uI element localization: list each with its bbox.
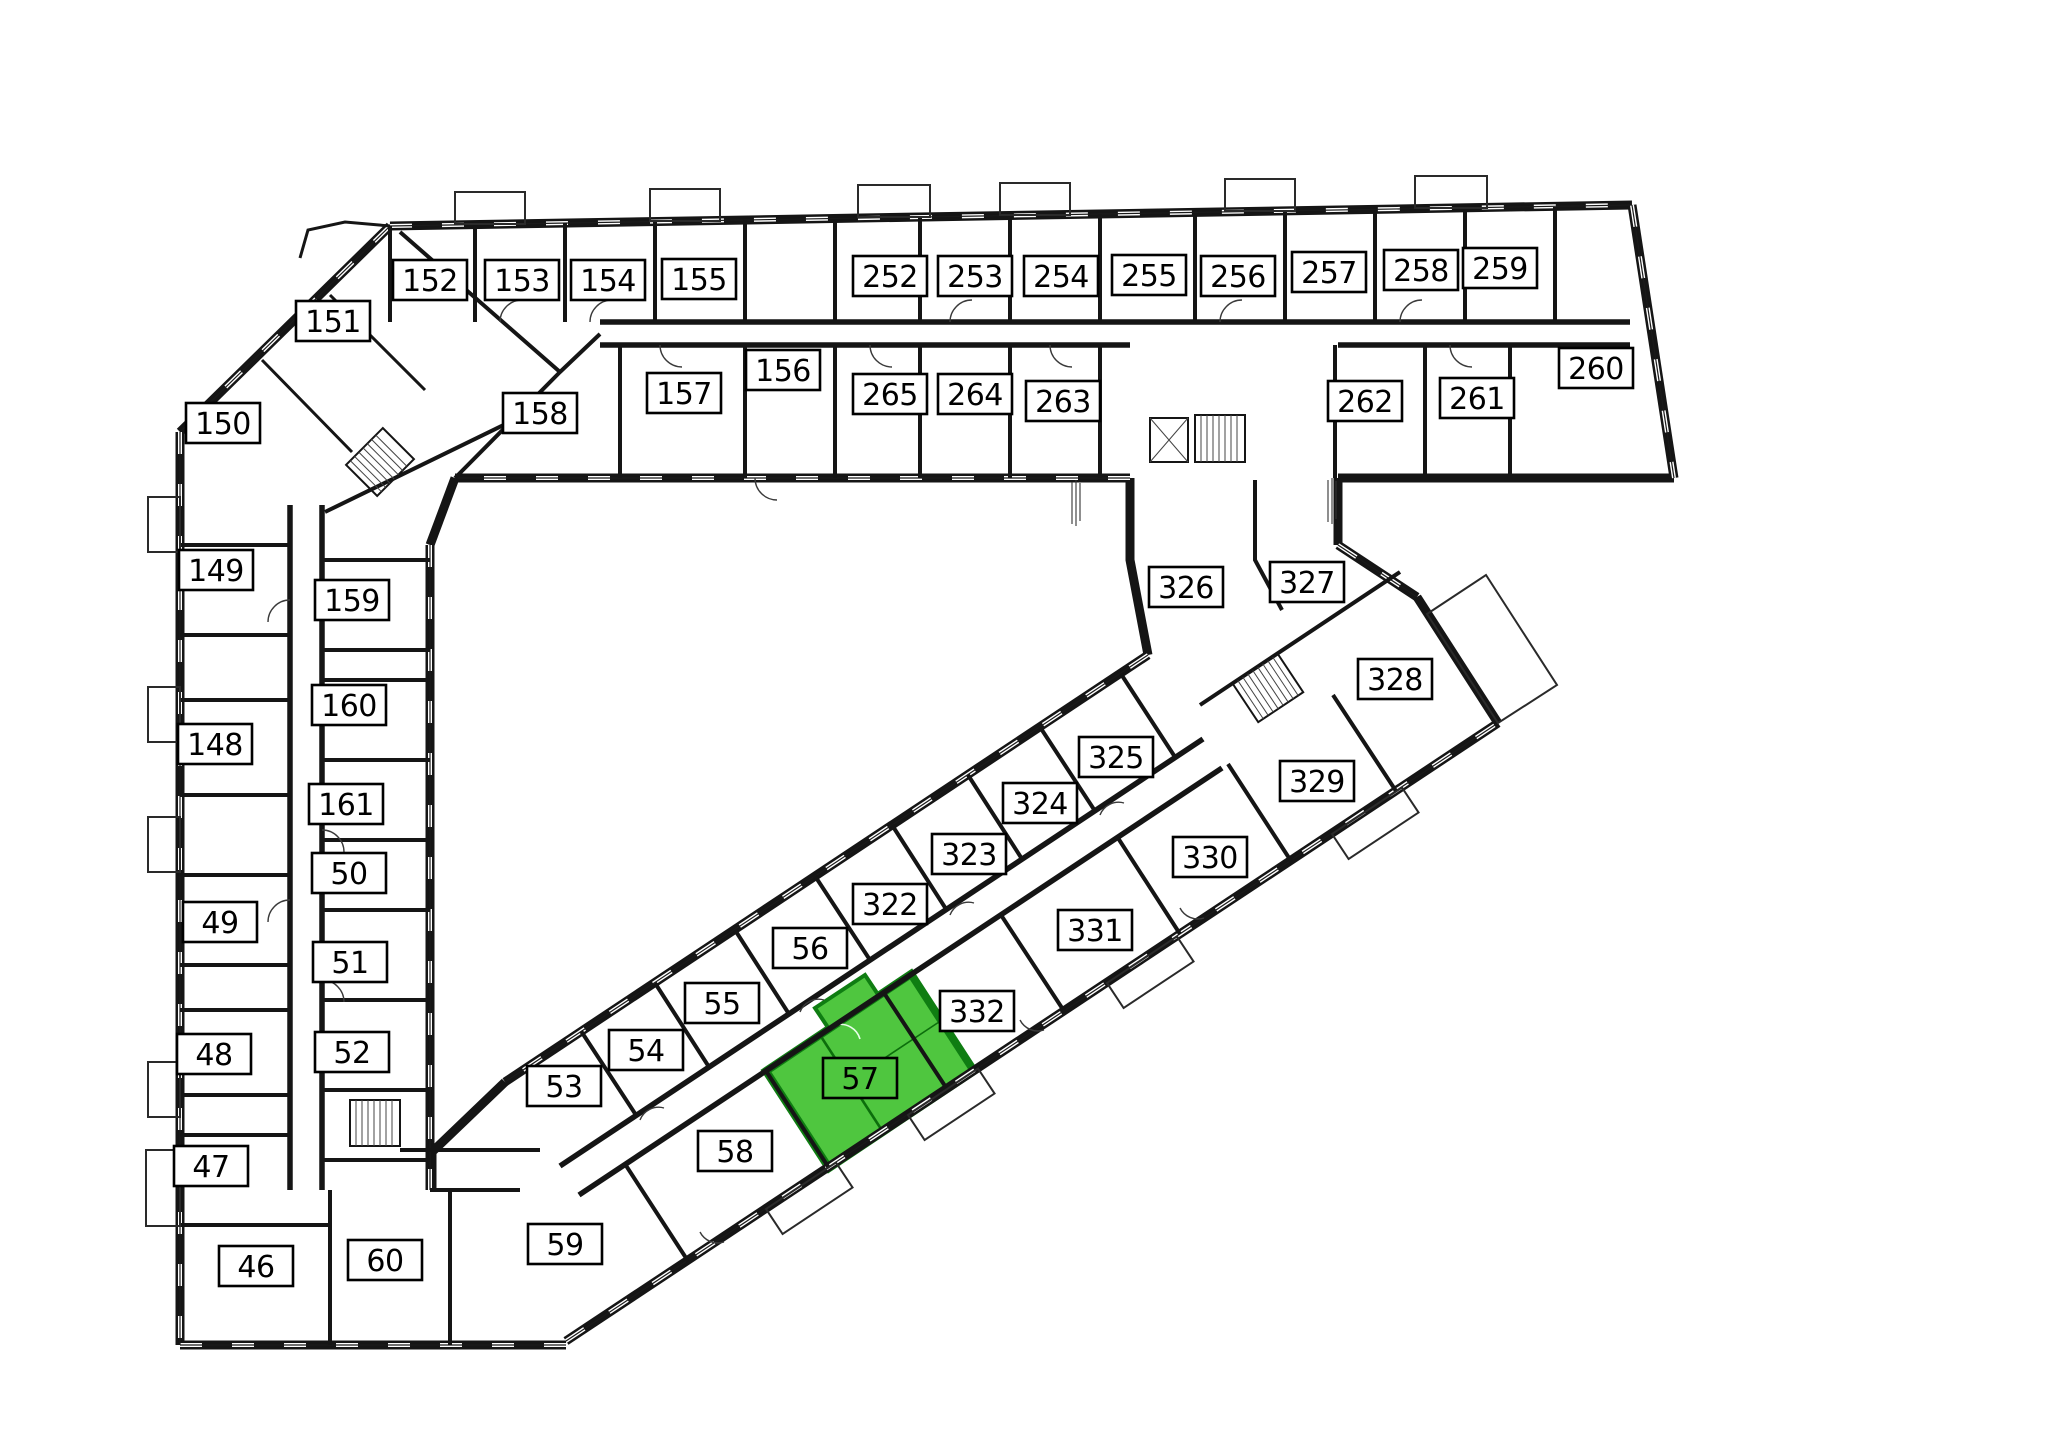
room-label-59[interactable]: 59 <box>528 1224 602 1264</box>
svg-text:252: 252 <box>862 260 918 295</box>
room-label-52[interactable]: 52 <box>315 1032 389 1072</box>
room-label-157[interactable]: 157 <box>647 373 721 413</box>
svg-text:154: 154 <box>580 264 636 299</box>
svg-text:52: 52 <box>333 1036 370 1071</box>
svg-text:48: 48 <box>195 1038 232 1073</box>
room-label-259[interactable]: 259 <box>1463 248 1537 288</box>
svg-text:156: 156 <box>755 354 811 389</box>
svg-text:323: 323 <box>941 838 997 873</box>
svg-text:55: 55 <box>703 987 740 1022</box>
room-label-332[interactable]: 332 <box>940 991 1014 1031</box>
svg-text:331: 331 <box>1067 914 1123 949</box>
room-label-154[interactable]: 154 <box>571 260 645 300</box>
room-label-255[interactable]: 255 <box>1112 255 1186 295</box>
svg-text:263: 263 <box>1035 385 1091 420</box>
room-label-329[interactable]: 329 <box>1280 761 1354 801</box>
room-label-55[interactable]: 55 <box>685 983 759 1023</box>
room-label-47[interactable]: 47 <box>174 1146 248 1186</box>
room-label-262[interactable]: 262 <box>1328 381 1402 421</box>
room-label-322[interactable]: 322 <box>853 884 927 924</box>
room-label-323[interactable]: 323 <box>932 834 1006 874</box>
svg-text:259: 259 <box>1472 252 1528 287</box>
room-label-150[interactable]: 150 <box>186 403 260 443</box>
svg-text:327: 327 <box>1279 566 1335 601</box>
svg-text:58: 58 <box>716 1135 753 1170</box>
room-label-60[interactable]: 60 <box>348 1240 422 1280</box>
svg-text:56: 56 <box>791 932 828 967</box>
svg-text:161: 161 <box>318 788 374 823</box>
svg-text:324: 324 <box>1012 787 1068 822</box>
svg-text:57: 57 <box>841 1062 878 1097</box>
room-label-253[interactable]: 253 <box>938 256 1012 296</box>
svg-text:153: 153 <box>494 264 550 299</box>
room-label-153[interactable]: 153 <box>485 260 559 300</box>
room-label-160[interactable]: 160 <box>312 685 386 725</box>
svg-text:157: 157 <box>656 377 712 412</box>
room-label-324[interactable]: 324 <box>1003 783 1077 823</box>
svg-text:148: 148 <box>187 728 243 763</box>
svg-text:332: 332 <box>949 995 1005 1030</box>
room-label-152[interactable]: 152 <box>393 260 467 300</box>
room-label-258[interactable]: 258 <box>1384 250 1458 290</box>
room-label-264[interactable]: 264 <box>938 374 1012 414</box>
svg-text:262: 262 <box>1337 385 1393 420</box>
room-label-261[interactable]: 261 <box>1440 378 1514 418</box>
svg-text:254: 254 <box>1033 260 1089 295</box>
svg-text:322: 322 <box>862 888 918 923</box>
room-label-327[interactable]: 327 <box>1270 562 1344 602</box>
svg-text:328: 328 <box>1367 663 1423 698</box>
room-label-148[interactable]: 148 <box>178 724 252 764</box>
svg-text:49: 49 <box>201 906 238 941</box>
room-label-263[interactable]: 263 <box>1026 381 1100 421</box>
svg-text:256: 256 <box>1210 260 1266 295</box>
svg-text:51: 51 <box>331 946 368 981</box>
svg-text:47: 47 <box>192 1150 229 1185</box>
room-label-326[interactable]: 326 <box>1149 567 1223 607</box>
floor-plan-page: { "plan": { "background": "#ffffff", "wa… <box>0 0 2048 1447</box>
room-label-46[interactable]: 46 <box>219 1246 293 1286</box>
svg-text:46: 46 <box>237 1250 274 1285</box>
svg-text:158: 158 <box>512 397 568 432</box>
svg-text:155: 155 <box>671 263 727 298</box>
room-label-254[interactable]: 254 <box>1024 256 1098 296</box>
room-label-50[interactable]: 50 <box>312 853 386 893</box>
room-label-56[interactable]: 56 <box>773 928 847 968</box>
room-label-330[interactable]: 330 <box>1173 837 1247 877</box>
svg-text:253: 253 <box>947 260 1003 295</box>
room-label-328[interactable]: 328 <box>1358 659 1432 699</box>
room-label-155[interactable]: 155 <box>662 259 736 299</box>
room-label-331[interactable]: 331 <box>1058 910 1132 950</box>
svg-text:50: 50 <box>330 857 367 892</box>
svg-text:59: 59 <box>546 1228 583 1263</box>
room-label-57[interactable]: 57 <box>823 1058 897 1098</box>
room-label-260[interactable]: 260 <box>1559 348 1633 388</box>
svg-text:152: 152 <box>402 264 458 299</box>
room-label-58[interactable]: 58 <box>698 1131 772 1171</box>
svg-text:257: 257 <box>1301 256 1357 291</box>
svg-text:325: 325 <box>1088 741 1144 776</box>
room-label-161[interactable]: 161 <box>309 784 383 824</box>
svg-text:326: 326 <box>1158 571 1214 606</box>
svg-text:258: 258 <box>1393 254 1449 289</box>
room-label-252[interactable]: 252 <box>853 256 927 296</box>
svg-text:54: 54 <box>627 1034 664 1069</box>
svg-text:264: 264 <box>947 378 1003 413</box>
svg-text:149: 149 <box>188 554 244 589</box>
room-label-158[interactable]: 158 <box>503 393 577 433</box>
room-label-265[interactable]: 265 <box>853 374 927 414</box>
svg-text:265: 265 <box>862 378 918 413</box>
room-label-54[interactable]: 54 <box>609 1030 683 1070</box>
svg-text:159: 159 <box>324 584 380 619</box>
room-label-325[interactable]: 325 <box>1079 737 1153 777</box>
room-label-49[interactable]: 49 <box>183 902 257 942</box>
svg-text:260: 260 <box>1568 352 1624 387</box>
room-label-151[interactable]: 151 <box>296 301 370 341</box>
svg-text:329: 329 <box>1289 765 1345 800</box>
floorplan-canvas: 1521531541552522532542552562572582591511… <box>0 0 2048 1447</box>
svg-text:151: 151 <box>305 305 361 340</box>
room-label-256[interactable]: 256 <box>1201 256 1275 296</box>
room-label-48[interactable]: 48 <box>177 1034 251 1074</box>
room-label-53[interactable]: 53 <box>527 1066 601 1106</box>
svg-text:330: 330 <box>1182 841 1238 876</box>
room-label-156[interactable]: 156 <box>746 350 820 390</box>
svg-text:150: 150 <box>195 407 251 442</box>
room-label-51[interactable]: 51 <box>313 942 387 982</box>
svg-text:255: 255 <box>1121 259 1177 294</box>
room-label-149[interactable]: 149 <box>179 550 253 590</box>
svg-text:261: 261 <box>1449 382 1505 417</box>
room-label-159[interactable]: 159 <box>315 580 389 620</box>
svg-text:53: 53 <box>545 1070 582 1105</box>
svg-text:60: 60 <box>366 1244 403 1279</box>
room-label-257[interactable]: 257 <box>1292 252 1366 292</box>
svg-text:160: 160 <box>321 689 377 724</box>
